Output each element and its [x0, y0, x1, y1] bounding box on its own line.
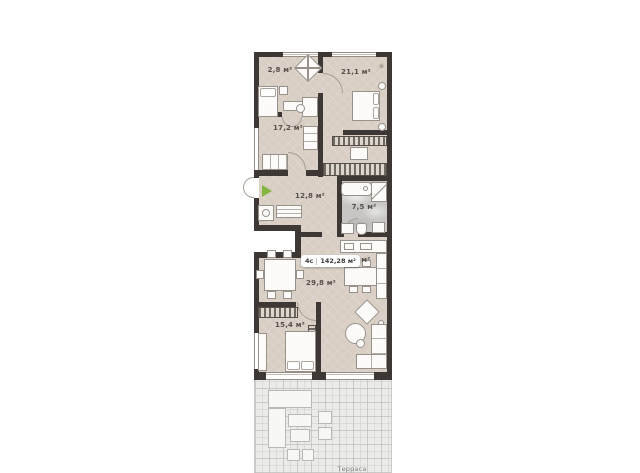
- nightstand: [378, 123, 386, 131]
- shower: [371, 182, 387, 202]
- bathtub-drain: [363, 186, 368, 191]
- terrace-door-glass: [266, 372, 312, 380]
- wall-segment: [301, 232, 322, 237]
- window: [254, 128, 259, 170]
- toilet: [356, 223, 367, 235]
- chair: [256, 270, 264, 279]
- chair: [296, 104, 305, 113]
- window: [332, 52, 376, 57]
- chair: [283, 250, 292, 258]
- pillow: [373, 107, 379, 119]
- wall-segment: [316, 302, 321, 372]
- room-label-living: 29,8 м²: [306, 279, 336, 287]
- nightstand: [378, 82, 386, 90]
- sofa: [356, 354, 387, 369]
- kitchen-sink: [344, 243, 354, 250]
- wardrobe-unit: [332, 136, 387, 146]
- room-label-bedroom-left: 17,2 м²: [273, 124, 303, 132]
- apartment-type: 4с: [305, 257, 313, 265]
- wall-segment: [387, 52, 392, 380]
- wall-segment: [254, 225, 301, 231]
- outdoor-sofa: [268, 408, 286, 448]
- apartment-info-badge: 4с 142,28 м²: [301, 255, 360, 267]
- room-label-bedroom-bottom: 15,4 м²: [275, 321, 305, 329]
- desk: [258, 333, 267, 371]
- outdoor-stool: [287, 449, 300, 461]
- window: [283, 52, 318, 57]
- chair: [283, 291, 292, 299]
- pillow: [287, 361, 300, 370]
- stove: [360, 243, 372, 250]
- pillow: [301, 361, 314, 370]
- dining-table: [264, 259, 296, 291]
- hall-cabinet: [276, 205, 302, 218]
- kitchen-table: [344, 267, 377, 286]
- room-label-bedroom-top: 21,1 м²: [341, 68, 371, 76]
- outdoor-table: [288, 414, 312, 427]
- outdoor-table: [290, 429, 310, 442]
- wall-segment: [312, 372, 326, 380]
- room-label-terrace: Терраса: [337, 465, 366, 473]
- badge-divider: [316, 258, 317, 265]
- wall-segment: [254, 372, 266, 380]
- outdoor-stool: [302, 449, 314, 461]
- pillow: [373, 93, 379, 105]
- wall-segment: [343, 130, 392, 135]
- apartment-area: 142,28 м²: [320, 257, 356, 265]
- cabinet: [262, 154, 288, 170]
- chair: [296, 270, 304, 279]
- room-label-bathroom: 7,5 м²: [352, 203, 377, 211]
- wall-segment: [374, 372, 392, 380]
- chair: [267, 250, 276, 258]
- pillow: [260, 88, 276, 97]
- sink: [372, 222, 385, 233]
- nightstand: [279, 86, 288, 95]
- wall-segment: [306, 170, 323, 176]
- fridge-column: [376, 253, 387, 299]
- plant-icon: ✳: [378, 62, 385, 71]
- entrance-door-arc: [243, 177, 254, 198]
- wall-segment: [337, 176, 392, 181]
- wardrobe-unit: [323, 163, 387, 176]
- chair: [362, 286, 371, 293]
- wall-segment: [254, 252, 301, 258]
- wall-segment: [259, 170, 288, 176]
- chair: [267, 291, 276, 299]
- terrace-door-glass: [326, 372, 374, 380]
- outdoor-chair: [318, 427, 332, 440]
- chair: [349, 286, 358, 293]
- floor-plan: ✳ 2,8 м² 21,1 м² 17: [0, 0, 640, 473]
- entrance-marker-icon: [262, 185, 272, 197]
- outdoor-sofa: [268, 390, 312, 408]
- bath-cabinet: [341, 223, 354, 234]
- dresser: [303, 126, 318, 150]
- dressing-table: [350, 147, 368, 160]
- pouf: [356, 339, 365, 348]
- exterior-notch: [259, 231, 295, 252]
- room-label-hallway: 12,8 м²: [295, 192, 325, 200]
- room-label-closet: 2,8 м²: [268, 66, 293, 74]
- outdoor-chair: [318, 411, 332, 424]
- wardrobe-unit: [258, 307, 298, 318]
- washing-machine-door: [262, 209, 270, 217]
